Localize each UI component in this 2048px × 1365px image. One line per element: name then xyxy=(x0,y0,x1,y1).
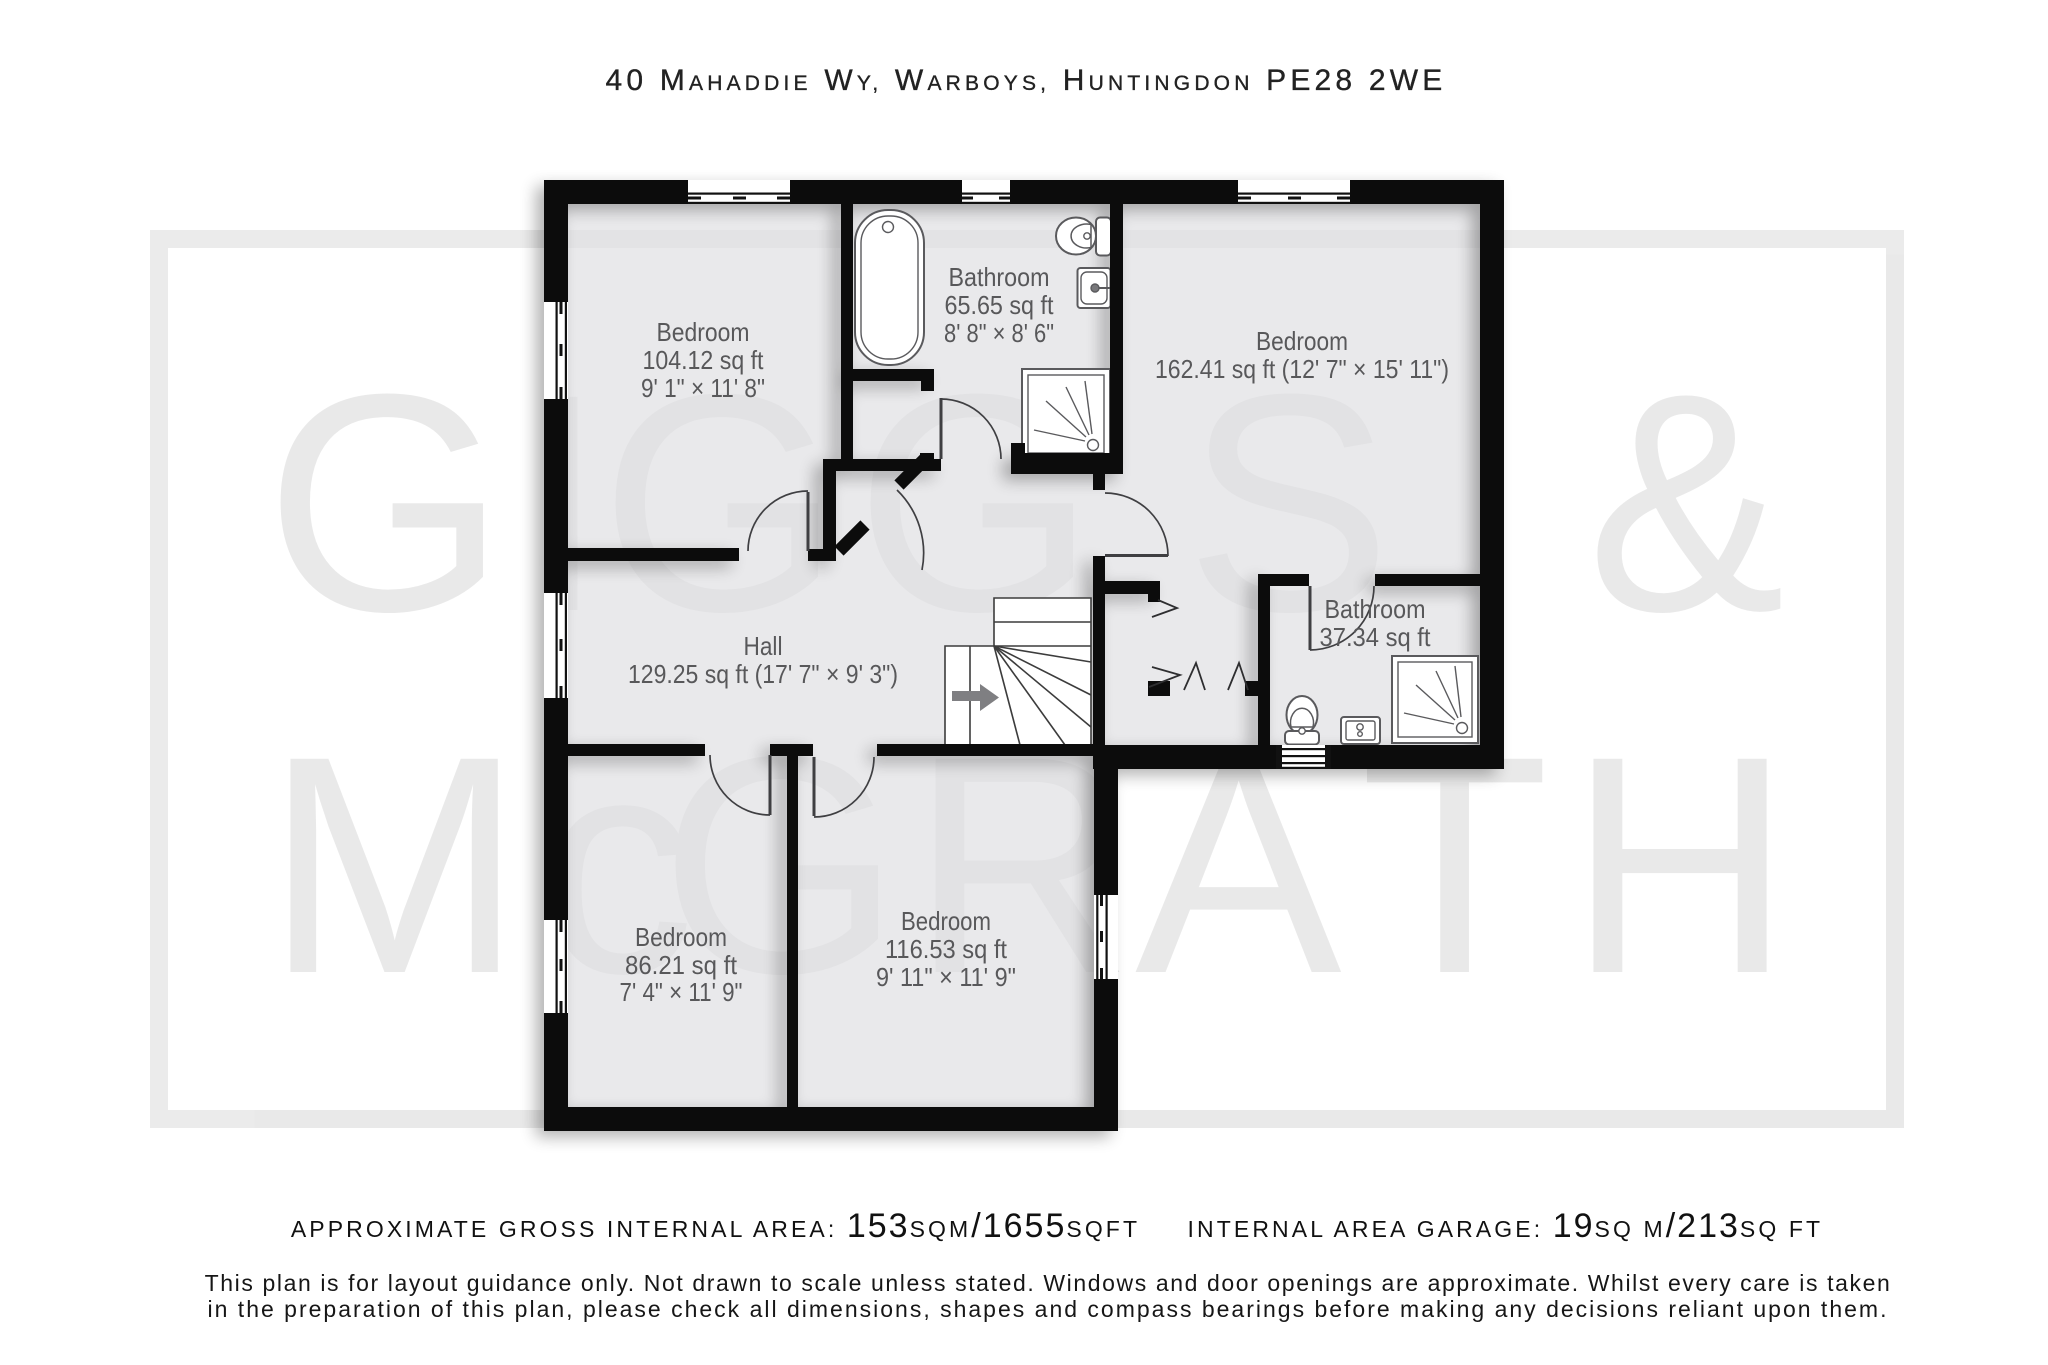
svg-text:Bathroom: Bathroom xyxy=(949,262,1050,292)
svg-text:116.53 sq ft: 116.53 sq ft xyxy=(885,934,1008,964)
svg-text:Bedroom: Bedroom xyxy=(1256,326,1348,356)
svg-text:86.21 sq ft: 86.21 sq ft xyxy=(625,950,738,980)
svg-text:&: & xyxy=(1587,329,1785,676)
svg-text:Bedroom: Bedroom xyxy=(657,317,750,347)
svg-text:129.25 sq ft (17' 7" × 9' 3"): 129.25 sq ft (17' 7" × 9' 3") xyxy=(628,659,898,689)
svg-text:This plan is for layout guidan: This plan is for layout guidance only. N… xyxy=(205,1270,1892,1296)
svg-text:9' 1" × 11' 8": 9' 1" × 11' 8" xyxy=(641,373,765,403)
svg-text:37.34 sq ft: 37.34 sq ft xyxy=(1320,622,1432,652)
svg-text:Bathroom: Bathroom xyxy=(1325,594,1426,624)
svg-text:8' 8" × 8' 6": 8' 8" × 8' 6" xyxy=(944,318,1054,348)
svg-text:Bedroom: Bedroom xyxy=(901,906,991,936)
svg-text:162.41 sq ft (12' 7" × 15' 11": 162.41 sq ft (12' 7" × 15' 11") xyxy=(1155,354,1449,384)
svg-text:9' 11" × 11' 9": 9' 11" × 11' 9" xyxy=(876,962,1016,992)
svg-text:Bedroom: Bedroom xyxy=(635,922,727,952)
svg-text:in the preparation of this pla: in the preparation of this plan, please … xyxy=(208,1296,1889,1322)
svg-text:65.65 sq ft: 65.65 sq ft xyxy=(945,290,1055,320)
svg-text:104.12 sq ft: 104.12 sq ft xyxy=(643,345,765,375)
svg-text:7' 4" × 11' 9": 7' 4" × 11' 9" xyxy=(620,977,743,1007)
svg-text:Hall: Hall xyxy=(744,631,783,661)
